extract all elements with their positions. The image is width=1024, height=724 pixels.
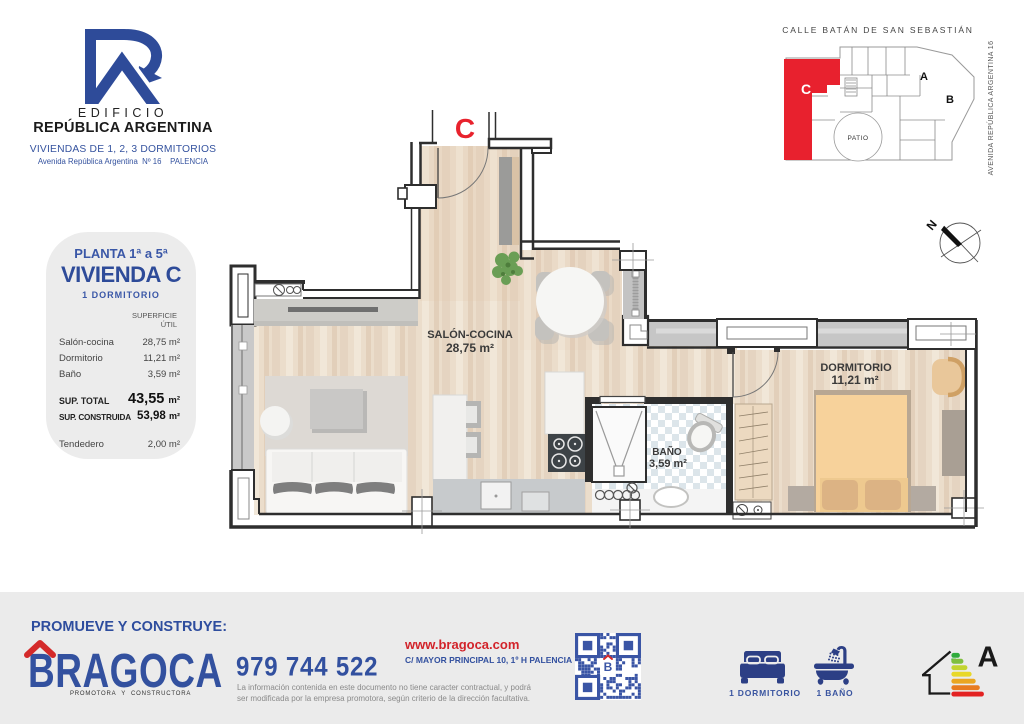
svg-text:11,21 m²: 11,21 m² bbox=[831, 373, 878, 387]
svg-text:B: B bbox=[604, 660, 613, 674]
svg-text:C: C bbox=[801, 81, 811, 97]
svg-text:28,75 m²: 28,75 m² bbox=[446, 341, 494, 355]
svg-text:A: A bbox=[920, 71, 928, 83]
svg-text:3,59 m²: 3,59 m² bbox=[649, 458, 687, 470]
svg-text:B: B bbox=[946, 94, 954, 106]
svg-text:A: A bbox=[978, 642, 999, 674]
svg-text:CALLE BATÁN DE SAN SEBASTIÁN: CALLE BATÁN DE SAN SEBASTIÁN bbox=[782, 25, 973, 35]
svg-text:PATIO: PATIO bbox=[847, 135, 868, 142]
svg-text:AVENIDA REPÚBLICA ARGENTINA 16: AVENIDA REPÚBLICA ARGENTINA 16 bbox=[986, 41, 995, 176]
svg-text:BAÑO: BAÑO bbox=[652, 445, 682, 458]
svg-text:SALÓN-COCINA: SALÓN-COCINA bbox=[427, 328, 513, 341]
svg-text:N: N bbox=[924, 217, 940, 233]
svg-text:C: C bbox=[455, 113, 475, 144]
